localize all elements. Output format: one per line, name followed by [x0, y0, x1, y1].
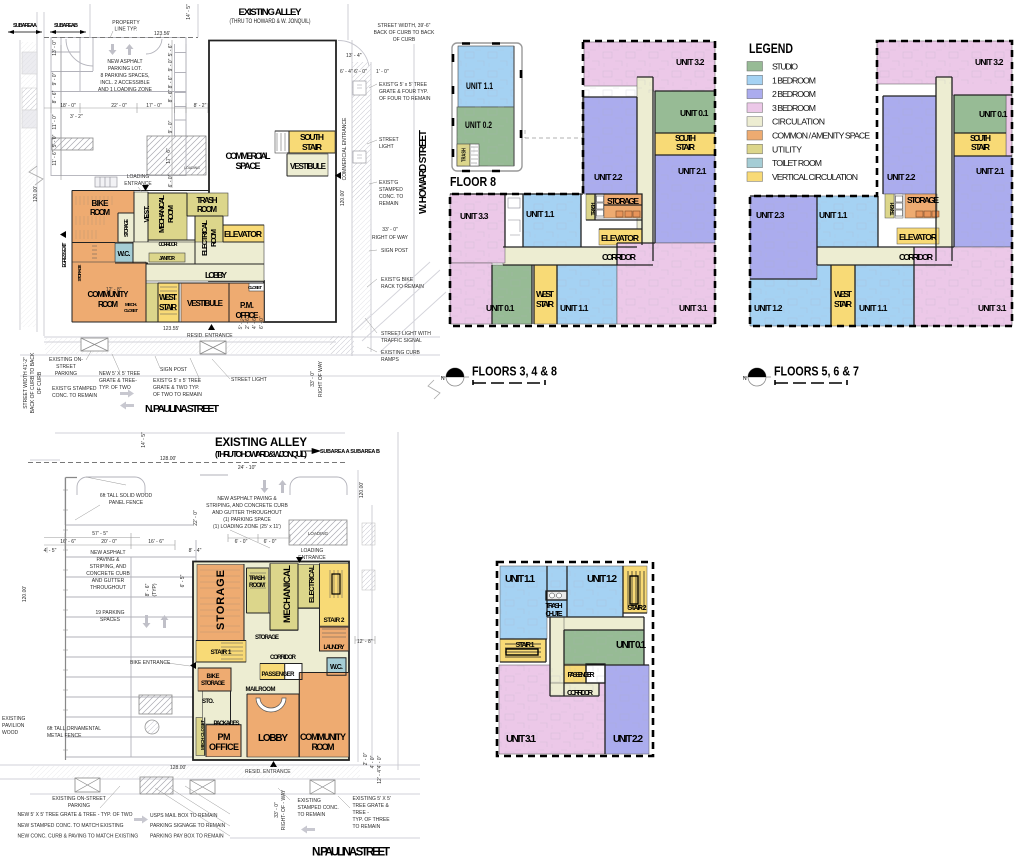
svg-text:2' - 6": 2' - 6"	[245, 316, 251, 329]
svg-text:(THRU TO HOWARD & W. JONQUIL): (THRU TO HOWARD & W. JONQUIL)	[230, 18, 311, 25]
svg-text:4' - 0": 4' - 0"	[370, 755, 376, 768]
svg-text:6' - 5": 6' - 5"	[180, 574, 186, 587]
svg-text:UNIT 0.1: UNIT 0.1	[616, 640, 646, 651]
svg-text:TRASH: TRASH	[249, 576, 265, 582]
svg-text:STAMPED: STAMPED	[379, 187, 403, 193]
svg-text:TREE GRATE &: TREE GRATE &	[353, 803, 390, 809]
svg-text:INCL. 2 ACCESSIBLE: INCL. 2 ACCESSIBLE	[100, 80, 150, 86]
svg-text:11' - 6": 11' - 6"	[52, 150, 58, 165]
svg-text:3' - 2": 3' - 2"	[70, 114, 83, 120]
svg-text:NEW ASPHALT: NEW ASPHALT	[107, 59, 142, 65]
svg-text:STAIR: STAIR	[676, 142, 695, 152]
svg-text:WEST: WEST	[536, 289, 555, 299]
svg-text:STORAGE: STORAGE	[77, 265, 82, 282]
svg-text:FLOORS 5, 6 & 7: FLOORS 5, 6 & 7	[774, 365, 859, 379]
svg-text:BIKE: BIKE	[92, 199, 110, 208]
svg-text:STORAGE: STORAGE	[607, 196, 639, 206]
svg-text:LOADING: LOADING	[127, 174, 150, 180]
svg-text:LEGEND: LEGEND	[749, 41, 793, 56]
svg-text:9' - 0": 9' - 0"	[168, 120, 174, 133]
svg-text:6ft TALL ORNAMENTAL: 6ft TALL ORNAMENTAL	[47, 726, 101, 732]
svg-text:ROOM: ROOM	[197, 205, 217, 214]
svg-text:(1) LOADING ZONE (25' x 11'): (1) LOADING ZONE (25' x 11')	[213, 524, 281, 530]
svg-text:1 BEDROOM: 1 BEDROOM	[772, 75, 816, 85]
svg-text:STO.: STO.	[202, 699, 214, 705]
svg-text:THROUGHOUT: THROUGHOUT	[90, 585, 126, 591]
svg-text:8' - 6": 8' - 6"	[145, 583, 151, 596]
svg-text:CIRCULATION: CIRCULATION	[772, 117, 825, 127]
svg-text:8' - 2": 8' - 2"	[194, 103, 207, 109]
svg-text:6ft TALL SOLID WOOD: 6ft TALL SOLID WOOD	[100, 493, 153, 499]
svg-text:STORAGE: STORAGE	[255, 635, 279, 641]
svg-text:COMMON / AMENITY SPACE: COMMON / AMENITY SPACE	[772, 131, 870, 141]
svg-text:STAMPED CONC.: STAMPED CONC.	[298, 805, 339, 811]
svg-text:UNIT 1.2: UNIT 1.2	[587, 574, 617, 585]
svg-text:EXISTING ALLEY: EXISTING ALLEY	[215, 437, 307, 449]
svg-text:4' - 5": 4' - 5"	[44, 548, 57, 554]
svg-text:UNIT 2.2: UNIT 2.2	[594, 172, 623, 182]
svg-text:STAIR 2: STAIR 2	[324, 617, 345, 624]
svg-text:MECH CLOSET: MECH CLOSET	[200, 720, 205, 750]
svg-text:6' - 0": 6' - 0"	[235, 539, 248, 545]
svg-text:CORRIDOR: CORRIDOR	[567, 688, 594, 697]
svg-text:COMMERCIAL: COMMERCIAL	[226, 151, 272, 161]
svg-text:EXISTING ON-STREET: EXISTING ON-STREET	[52, 796, 106, 802]
svg-text:EXISTING CURB: EXISTING CURB	[381, 350, 421, 356]
svg-text:STREET WIDTH, 39'-6": STREET WIDTH, 39'-6"	[378, 23, 431, 29]
svg-text:120.00': 120.00'	[22, 586, 28, 602]
svg-text:17' - 0": 17' - 0"	[146, 103, 162, 109]
svg-text:EXIST'G BIKE: EXIST'G BIKE	[381, 277, 414, 283]
svg-text:STORAGE: STORAGE	[124, 218, 130, 237]
svg-text:8' - 4": 8' - 4"	[189, 548, 202, 554]
svg-text:6' - 0": 6' - 0"	[259, 316, 265, 329]
svg-text:UNIT 3.1: UNIT 3.1	[506, 734, 536, 745]
svg-text:128.00': 128.00'	[160, 456, 176, 462]
svg-text:4' - 6": 4' - 6"	[252, 316, 258, 329]
svg-text:STAIR: STAIR	[159, 303, 177, 312]
svg-text:VESTIBULE: VESTIBULE	[187, 299, 224, 308]
svg-text:CORRIDOR: CORRIDOR	[602, 252, 636, 262]
svg-text:12' - 4": 12' - 4"	[377, 768, 383, 784]
svg-text:BIKE ENTRANCE: BIKE ENTRANCE	[130, 660, 171, 666]
svg-text:12' - 8": 12' - 8"	[106, 287, 122, 293]
svg-text:STAIR 1: STAIR 1	[211, 649, 232, 656]
svg-text:CORRIDOR: CORRIDOR	[270, 655, 297, 661]
svg-text:57' - 5": 57' - 5"	[92, 531, 108, 537]
svg-text:5' - 6": 5' - 6"	[168, 43, 174, 56]
svg-text:33' - 0": 33' - 0"	[382, 227, 398, 233]
svg-text:UNIT 1.2: UNIT 1.2	[754, 303, 783, 313]
svg-text:ROOM: ROOM	[312, 742, 335, 752]
svg-text:OF FOUR TO REMAIN: OF FOUR TO REMAIN	[379, 96, 431, 102]
svg-text:METAL FENCE: METAL FENCE	[47, 733, 82, 739]
svg-text:COMMERCIAL ENTRANCE: COMMERCIAL ENTRANCE	[342, 117, 348, 180]
svg-text:ELEVATOR: ELEVATOR	[899, 232, 937, 242]
svg-text:MECHANICAL: MECHANICAL	[282, 565, 293, 623]
svg-text:VERTICAL CIRCULATION: VERTICAL CIRCULATION	[772, 172, 858, 182]
svg-text:STORAGE: STORAGE	[215, 570, 227, 630]
svg-text:8' - 6": 8' - 6"	[52, 90, 58, 103]
svg-text:TO REMAIN: TO REMAIN	[298, 812, 326, 818]
svg-text:PROPERTY: PROPERTY	[112, 20, 140, 26]
svg-text:CHUTE: CHUTE	[546, 611, 563, 618]
svg-text:ROOM: ROOM	[209, 229, 218, 247]
svg-text:OF TWO TO REMAIN: OF TWO TO REMAIN	[153, 392, 202, 398]
svg-text:FLOOR 8: FLOOR 8	[450, 175, 496, 189]
svg-text:P.M.: P.M.	[240, 301, 254, 310]
svg-text:123.56': 123.56'	[154, 31, 170, 37]
svg-text:VESTIBULE: VESTIBULE	[290, 162, 327, 171]
svg-text:VEST.: VEST.	[144, 205, 151, 222]
svg-text:UNIT 3.3: UNIT 3.3	[460, 211, 489, 221]
svg-text:NEW ASPHALT: NEW ASPHALT	[90, 550, 125, 556]
svg-text:STAIR: STAIR	[536, 299, 554, 309]
svg-text:USPS MAIL BOX TO REMAIN: USPS MAIL BOX TO REMAIN	[150, 813, 218, 819]
svg-text:WEST: WEST	[834, 289, 853, 299]
svg-text:SIGN POST: SIGN POST	[160, 367, 187, 373]
svg-text:GRATE & TWO TYP.: GRATE & TWO TYP.	[153, 385, 199, 391]
svg-text:CONC. TO: CONC. TO	[379, 194, 403, 200]
svg-text:SPACES: SPACES	[100, 617, 121, 623]
svg-text:5' - 0": 5' - 0"	[52, 134, 58, 147]
svg-text:N: N	[441, 376, 445, 382]
svg-text:UNIT 3.1: UNIT 3.1	[679, 303, 708, 313]
svg-text:EXISTING ALLEY: EXISTING ALLEY	[239, 7, 303, 18]
svg-text:UNIT 1.1: UNIT 1.1	[466, 81, 493, 91]
svg-text:AND GUTTER: AND GUTTER	[92, 578, 125, 584]
svg-text:STREET: STREET	[56, 364, 76, 370]
svg-text:WEST: WEST	[159, 293, 177, 302]
svg-text:14' - 5": 14' - 5"	[186, 4, 192, 20]
svg-text:UNIT 1.1: UNIT 1.1	[819, 210, 848, 220]
svg-text:17' - 6": 17' - 6"	[166, 148, 172, 164]
svg-text:UNIT 2.1: UNIT 2.1	[678, 166, 707, 176]
svg-text:NEW ASPHALT PAVING &: NEW ASPHALT PAVING &	[217, 496, 277, 502]
svg-text:22' - 0": 22' - 0"	[193, 510, 199, 526]
svg-text:6' - 4" 6' - 0": 6' - 4" 6' - 0"	[340, 69, 367, 75]
svg-text:UNIT 2.2: UNIT 2.2	[887, 172, 916, 182]
svg-text:ROOM: ROOM	[90, 208, 110, 217]
svg-text:NEW CONC. CURB & PAVING TO MAT: NEW CONC. CURB & PAVING TO MATCH EXISTIN…	[18, 834, 139, 840]
svg-text:NEW 5' X 5' TREE GRATE & TREE: NEW 5' X 5' TREE GRATE & TREE - TYP. OF …	[18, 812, 133, 818]
svg-text:STORAGE: STORAGE	[201, 681, 225, 687]
svg-text:8' - 6": 8' - 6"	[168, 89, 174, 102]
svg-text:RAMPS: RAMPS	[381, 357, 399, 363]
svg-text:SUBAREA B: SUBAREA B	[54, 23, 78, 29]
svg-text:UTILITY: UTILITY	[772, 144, 802, 154]
svg-text:(TYP): (TYP)	[152, 583, 158, 596]
svg-text:LOADING: LOADING	[308, 531, 329, 536]
svg-text:RIGHT OF WAY: RIGHT OF WAY	[372, 235, 409, 241]
svg-text:(1) PARKING SPACE: (1) PARKING SPACE	[223, 517, 271, 523]
svg-text:AND 1 LOADING ZONE: AND 1 LOADING ZONE	[98, 87, 153, 93]
svg-text:RIGHT OF WAY: RIGHT OF WAY	[318, 360, 324, 397]
svg-text:PM: PM	[218, 732, 231, 742]
svg-text:2' - 0": 2' - 0"	[363, 752, 369, 765]
svg-text:PANEL FENCE: PANEL FENCE	[109, 500, 144, 506]
svg-text:PARKING LOT.: PARKING LOT.	[108, 66, 142, 72]
svg-text:ROOM: ROOM	[249, 583, 265, 589]
svg-text:MECHANICAL: MECHANICAL	[157, 195, 166, 233]
svg-text:TO REMAIN: TO REMAIN	[353, 824, 381, 830]
svg-text:TRASH: TRASH	[462, 148, 468, 162]
svg-text:120.00': 120.00'	[359, 482, 365, 498]
svg-text:LIGHT: LIGHT	[379, 144, 394, 150]
svg-text:CORRIDOR: CORRIDOR	[159, 242, 178, 248]
svg-text:STRIPING, AND CONCRETE CURB: STRIPING, AND CONCRETE CURB	[206, 503, 288, 509]
svg-text:9' - 0": 9' - 0"	[52, 72, 58, 85]
svg-text:AND GUTTER THROUGHOUT: AND GUTTER THROUGHOUT	[212, 510, 282, 516]
svg-text:1' - 0": 1' - 0"	[376, 69, 389, 75]
svg-text:ENTRANCE: ENTRANCE	[298, 555, 326, 561]
svg-text:TRAFFIC SIGNAL: TRAFFIC SIGNAL	[381, 338, 422, 344]
svg-text:W.C.: W.C.	[118, 251, 131, 258]
svg-text:RACK TO REMAIN: RACK TO REMAIN	[381, 284, 424, 290]
svg-text:LINE TYP.: LINE TYP.	[115, 27, 138, 33]
svg-text:16' - 6": 16' - 6"	[60, 539, 76, 545]
svg-text:NEW STAMPED CONC. TO MATCH EXI: NEW STAMPED CONC. TO MATCH EXISTING	[18, 823, 124, 829]
svg-text:ELEVATOR: ELEVATOR	[601, 233, 639, 243]
svg-text:UNIT 0.1: UNIT 0.1	[680, 108, 709, 118]
svg-text:ELECTRICAL: ELECTRICAL	[309, 564, 316, 603]
svg-text:19 PARKING: 19 PARKING	[95, 610, 124, 616]
svg-text:ELEVATOR: ELEVATOR	[224, 229, 262, 239]
svg-text:TYP. OF THREE: TYP. OF THREE	[353, 817, 391, 823]
svg-text:PASSENGER: PASSENGER	[262, 672, 296, 678]
svg-text:UNIT 3.1: UNIT 3.1	[978, 303, 1007, 313]
svg-text:ENTRANCE: ENTRANCE	[124, 181, 152, 187]
svg-text:CONCRETE CURB: CONCRETE CURB	[86, 571, 130, 577]
svg-text:BIKE: BIKE	[207, 674, 220, 680]
svg-text:N: N	[743, 376, 747, 382]
svg-text:20' - 0": 20' - 0"	[101, 539, 117, 545]
svg-text:TYP. OF TWO: TYP. OF TWO	[99, 385, 131, 391]
svg-text:13' - 4": 13' - 4"	[346, 53, 362, 59]
svg-text:ROOM: ROOM	[98, 300, 118, 309]
svg-text:STAIR: STAIR	[834, 299, 852, 309]
svg-text:33' - 0": 33' - 0"	[274, 802, 280, 818]
svg-text:CONC. TO REMAIN: CONC. TO REMAIN	[52, 393, 97, 399]
svg-text:STORAGE: STORAGE	[907, 195, 939, 205]
svg-text:14' - 5": 14' - 5"	[141, 432, 147, 448]
svg-text:STAIR 1: STAIR 1	[516, 642, 535, 649]
svg-text:STREET: STREET	[379, 137, 399, 143]
svg-text:PASSENGER: PASSENGER	[568, 672, 595, 679]
svg-text:W.C.: W.C.	[330, 664, 343, 671]
svg-text:ROOM: ROOM	[166, 205, 175, 223]
svg-text:N. PAULINA STREET: N. PAULINA STREET	[312, 847, 390, 859]
svg-text:EXISTING: EXISTING	[2, 716, 25, 722]
svg-text:STAIR: STAIR	[302, 142, 322, 152]
svg-text:TRASH: TRASH	[546, 603, 563, 610]
svg-text:UNIT 0.1: UNIT 0.1	[979, 109, 1008, 119]
svg-text:PARKING: PARKING	[68, 803, 90, 809]
svg-text:3 BEDROOM: 3 BEDROOM	[772, 103, 816, 113]
svg-text:33' - 0": 33' - 0"	[310, 371, 316, 387]
svg-text:6' - 0": 6' - 0"	[264, 539, 277, 545]
svg-text:OF CURB: OF CURB	[37, 371, 43, 394]
svg-text:13' - 0": 13' - 0"	[52, 40, 58, 56]
svg-text:LOADING: LOADING	[184, 166, 200, 170]
svg-text:TOILET ROOM: TOILET ROOM	[772, 158, 822, 168]
svg-text:ELECTRICAL: ELECTRICAL	[200, 220, 209, 256]
svg-text:MAILROOM: MAILROOM	[246, 687, 276, 693]
svg-text:8 PARKING SPACES,: 8 PARKING SPACES,	[101, 73, 150, 79]
svg-text:120.00': 120.00'	[340, 190, 346, 206]
svg-text:UNIT 3.2: UNIT 3.2	[676, 57, 705, 67]
svg-text:UNIT 1.1: UNIT 1.1	[526, 209, 555, 219]
svg-text:PAVING &: PAVING &	[97, 557, 121, 563]
svg-text:UNIT 2.3: UNIT 2.3	[756, 210, 785, 220]
svg-text:STREET LIGHT: STREET LIGHT	[231, 377, 267, 383]
svg-text:UNIT 1.1: UNIT 1.1	[560, 303, 589, 313]
svg-text:UNIT 2.1: UNIT 2.1	[976, 166, 1005, 176]
svg-text:SIGN POST: SIGN POST	[381, 248, 408, 254]
svg-text:SOUTH: SOUTH	[300, 132, 324, 142]
svg-text:TRASH: TRASH	[591, 202, 597, 215]
svg-text:STAIR: STAIR	[971, 142, 990, 152]
svg-text:22' - 0": 22' - 0"	[111, 103, 127, 109]
svg-text:W. HOWARD STREET: W. HOWARD STREET	[418, 130, 429, 214]
svg-text:EXIST'G 5' x 5' TREE: EXIST'G 5' x 5' TREE	[379, 82, 428, 88]
svg-text:TREE -: TREE -	[353, 810, 370, 816]
svg-text:9' - 0": 9' - 0"	[168, 58, 174, 71]
svg-text:EXISTING: EXISTING	[298, 798, 321, 804]
svg-text:6' - 0": 6' - 0"	[168, 174, 174, 187]
svg-text:EGRESS EXIT: EGRESS EXIT	[62, 243, 68, 268]
svg-text:24' - 10": 24' - 10"	[238, 465, 257, 471]
svg-text:16' - 6": 16' - 6"	[148, 539, 164, 545]
svg-text:N. PAULINA STREET: N. PAULINA STREET	[145, 403, 220, 415]
svg-text:GRATE & FOUR TYP.: GRATE & FOUR TYP.	[379, 89, 428, 95]
svg-text:SUBAREA A SUBAREA B: SUBAREA A SUBAREA B	[320, 449, 380, 455]
svg-text:STRIPING, AND: STRIPING, AND	[90, 564, 127, 570]
svg-text:PARKING PAY BOX TO REMAIN: PARKING PAY BOX TO REMAIN	[150, 834, 224, 840]
svg-text:FLOORS 3, 4 & 8: FLOORS 3, 4 & 8	[472, 365, 557, 379]
svg-text:STUDIO: STUDIO	[772, 62, 798, 72]
svg-text:MECH.: MECH.	[125, 302, 137, 307]
svg-text:123.55': 123.55'	[163, 326, 179, 332]
svg-text:SPACE: SPACE	[236, 161, 261, 171]
svg-text:2 BEDROOM: 2 BEDROOM	[772, 89, 816, 99]
svg-text:PARKING: PARKING	[55, 371, 77, 377]
svg-text:UNIT 0.1: UNIT 0.1	[486, 303, 515, 313]
svg-text:OF CURB: OF CURB	[393, 37, 416, 43]
svg-text:EXIST'G STAMPED: EXIST'G STAMPED	[52, 386, 97, 392]
svg-text:LAUNDRY: LAUNDRY	[324, 645, 345, 651]
svg-text:EXIST'G 5' x 5' TREE: EXIST'G 5' x 5' TREE	[153, 378, 202, 384]
svg-text:TRASH: TRASH	[890, 202, 896, 215]
svg-text:COMMUNITY: COMMUNITY	[300, 732, 346, 742]
svg-text:REMAIN: REMAIN	[379, 201, 399, 207]
svg-text:EXISTING 5' X 5': EXISTING 5' X 5'	[353, 796, 391, 802]
svg-text:EXISTING ON-: EXISTING ON-	[49, 357, 83, 363]
svg-text:SUBAREA A: SUBAREA A	[13, 23, 37, 29]
svg-text:(THRU TO HOWARD & W. JONQUIL): (THRU TO HOWARD & W. JONQUIL)	[215, 449, 307, 459]
svg-text:EXIST'G: EXIST'G	[379, 180, 398, 186]
svg-text:18' - 0": 18' - 0"	[60, 103, 76, 109]
svg-text:LOBBY: LOBBY	[205, 270, 227, 280]
svg-text:CLOSET: CLOSET	[248, 285, 262, 290]
svg-text:JANITOR: JANITOR	[159, 256, 175, 262]
svg-text:TRASH: TRASH	[197, 196, 218, 205]
svg-text:UNIT 2.2: UNIT 2.2	[613, 734, 643, 745]
svg-text:11' - 0": 11' - 0"	[52, 114, 58, 129]
svg-text:GRATE & TREE-: GRATE & TREE-	[99, 378, 137, 384]
svg-text:UNIT 0.2: UNIT 0.2	[465, 120, 492, 130]
svg-text:OFFICE: OFFICE	[209, 742, 239, 752]
svg-text:CORRIDOR: CORRIDOR	[899, 252, 933, 262]
svg-text:UNIT 1.1: UNIT 1.1	[859, 303, 888, 313]
svg-text:STREET LIGHT WITH: STREET LIGHT WITH	[381, 331, 431, 337]
svg-text:UNIT 3.2: UNIT 3.2	[975, 57, 1004, 67]
svg-text:PAVILION: PAVILION	[2, 723, 25, 729]
svg-text:BACK OF CURB TO BACK: BACK OF CURB TO BACK	[374, 30, 435, 36]
svg-text:LOBBY: LOBBY	[258, 733, 288, 744]
svg-text:CLOSET: CLOSET	[124, 308, 138, 313]
svg-text:8' - 6": 8' - 6"	[168, 75, 174, 88]
svg-text:STREET WIDTH 41'-2": STREET WIDTH 41'-2"	[23, 357, 29, 409]
svg-text:STAIR 2: STAIR 2	[628, 605, 647, 612]
svg-text:UNIT 1.1: UNIT 1.1	[505, 574, 535, 585]
svg-text:BACK OF CURB TO BACK: BACK OF CURB TO BACK	[30, 352, 36, 413]
svg-text:WOOD: WOOD	[2, 730, 18, 736]
svg-text:LOADING: LOADING	[301, 548, 324, 554]
svg-text:4' - 0": 4' - 0"	[377, 755, 383, 768]
svg-text:PACKAGES: PACKAGES	[214, 721, 240, 727]
svg-text:RIGHT- OF - WAY: RIGHT- OF - WAY	[281, 789, 287, 830]
